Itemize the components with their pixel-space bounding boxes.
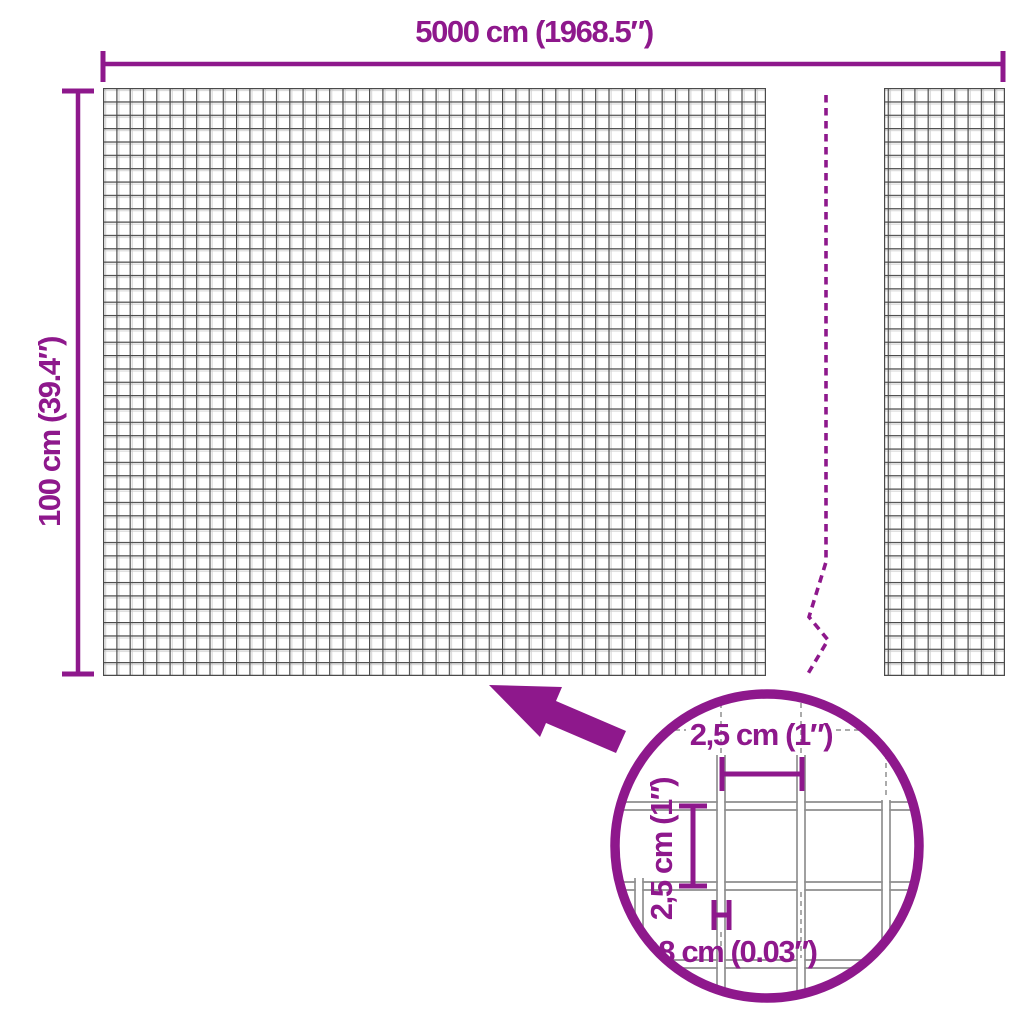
detail-width-label: 2,5 cm (1″) bbox=[690, 717, 833, 752]
width-dimension-label: 5000 cm (1968.5″) bbox=[415, 14, 653, 49]
width-dimension: 5000 cm (1968.5″) bbox=[103, 14, 1003, 82]
mesh-panel-right bbox=[884, 88, 1005, 676]
height-dimension-label: 100 cm (39.4″) bbox=[32, 337, 67, 527]
zoom-arrow-icon bbox=[489, 685, 626, 753]
mesh-break-line bbox=[806, 95, 828, 677]
diagram-canvas: 5000 cm (1968.5″) 100 cm (39.4″) bbox=[0, 0, 1024, 1024]
product-dimension-diagram: 5000 cm (1968.5″) 100 cm (39.4″) bbox=[0, 0, 1024, 1024]
detail-height-label: 2,5 cm (1″) bbox=[644, 778, 679, 921]
magnifier-circle: 2,5 cm (1″) 2,5 cm (1″) 0,08 cm (0.03″) bbox=[610, 694, 924, 1005]
mesh-panel-left bbox=[103, 88, 766, 676]
height-dimension: 100 cm (39.4″) bbox=[32, 91, 94, 674]
